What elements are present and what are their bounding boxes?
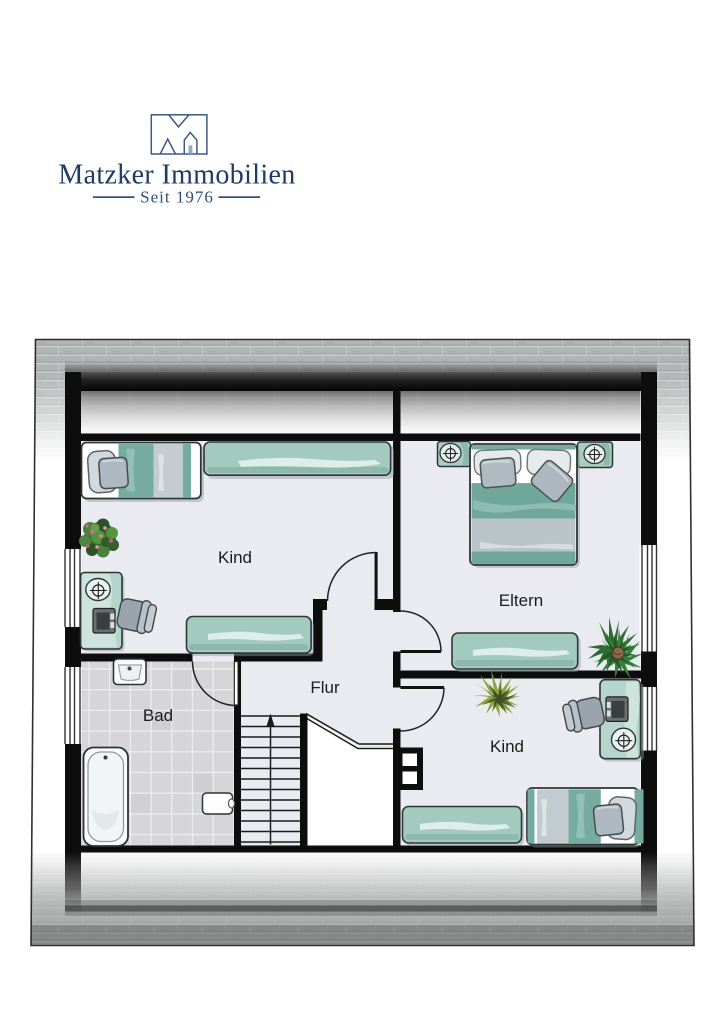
svg-text:Eltern: Eltern: [499, 591, 543, 610]
svg-text:Flur: Flur: [310, 678, 340, 697]
svg-text:Matzker Immobilien: Matzker Immobilien: [58, 160, 295, 191]
svg-text:Seit 1976: Seit 1976: [140, 188, 214, 207]
svg-text:Bad: Bad: [143, 706, 173, 725]
svg-text:Kind: Kind: [490, 737, 524, 756]
svg-text:Kind: Kind: [218, 548, 252, 567]
